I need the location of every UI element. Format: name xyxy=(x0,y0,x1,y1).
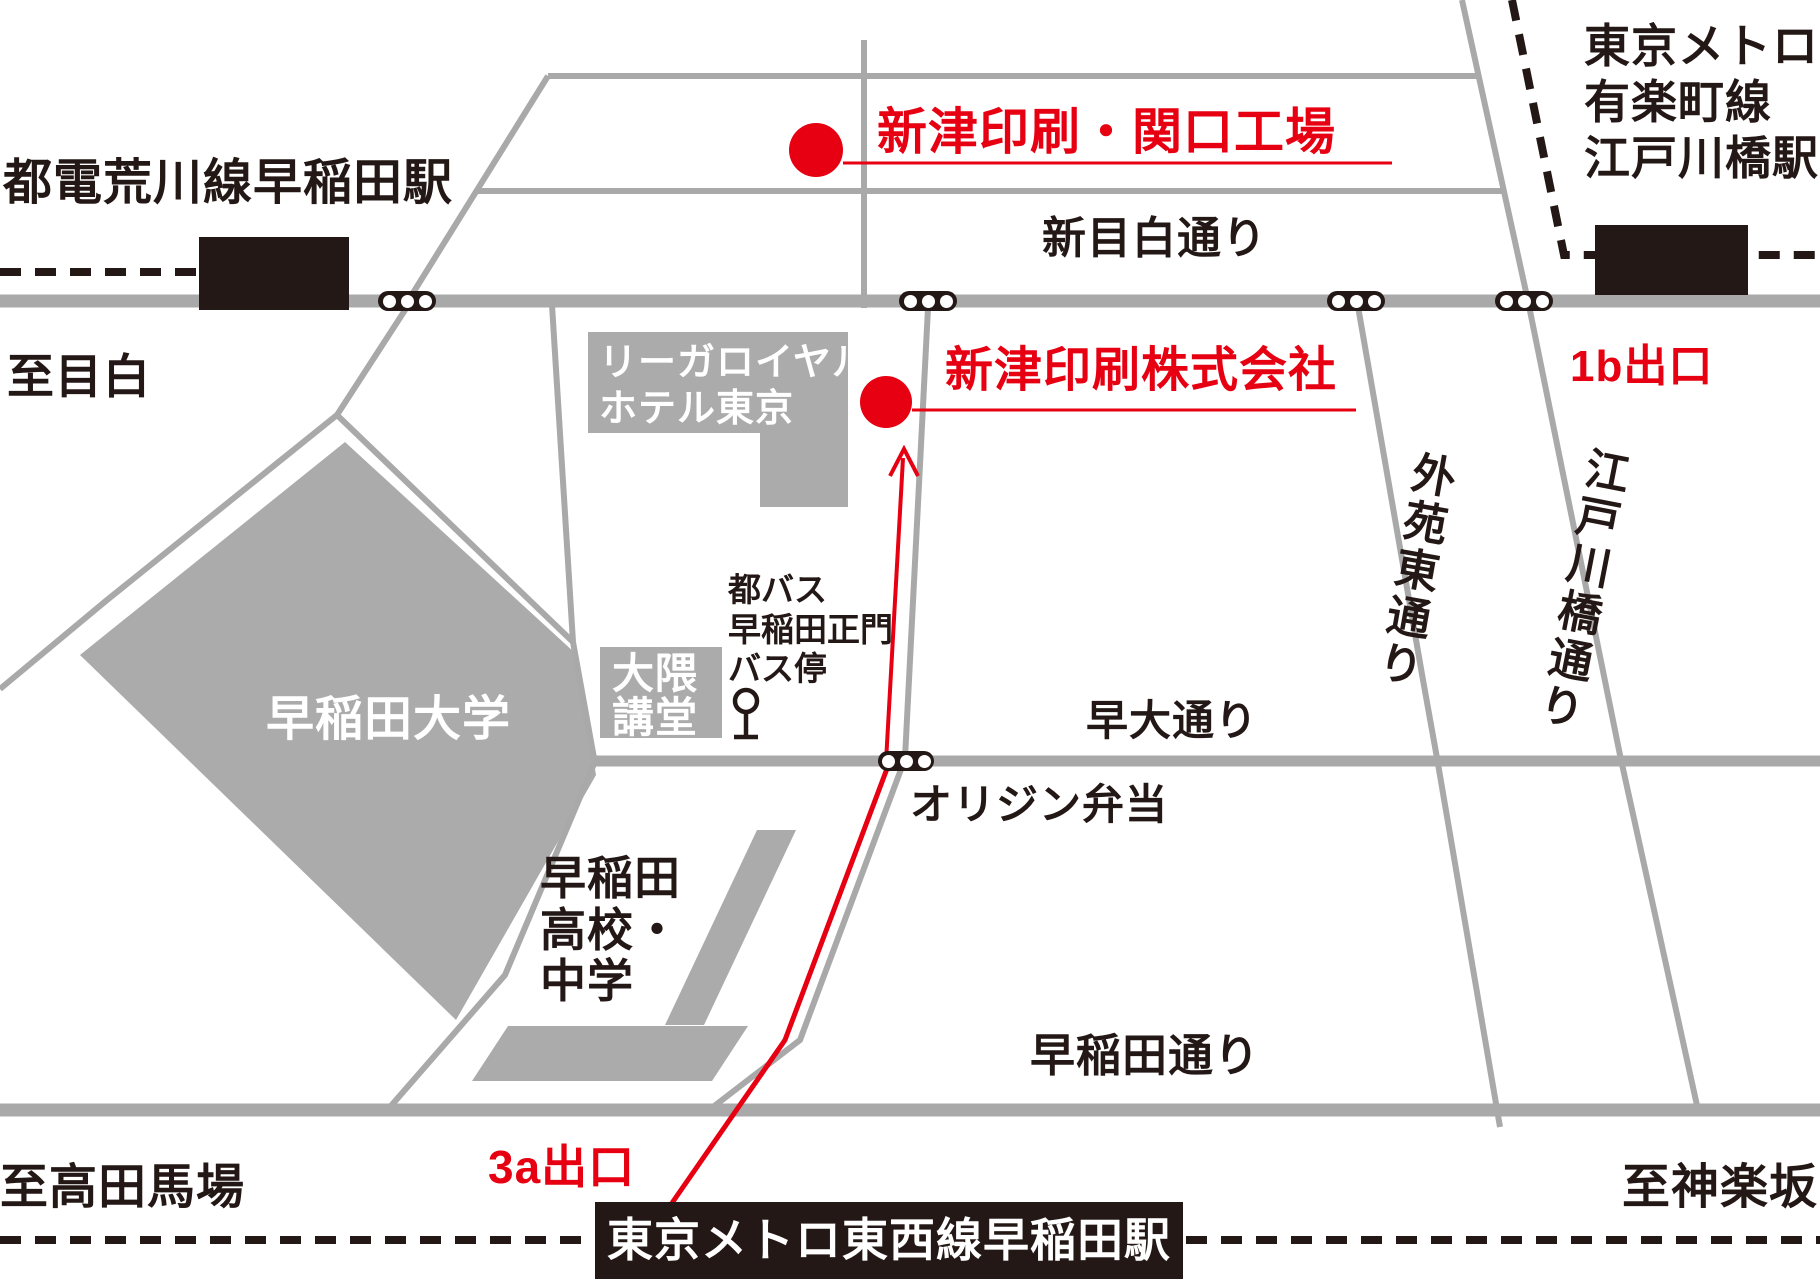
tozai-station-label: 東京メトロ東西線早稲田駅 xyxy=(607,1214,1171,1267)
waseda-dori-label: 早稲田通り xyxy=(1030,1030,1260,1082)
waseda-school-building-b xyxy=(472,1026,748,1081)
origin-bento-label: オリジン弁当 xyxy=(910,781,1168,830)
sekiguchi-plant-label: 新津印刷・関口工場 xyxy=(877,103,1336,161)
toden-station-block-icon xyxy=(199,237,349,310)
bus-stop-label: 都バス 早稲田正門 バス停 xyxy=(728,570,893,689)
to-kagurazaka-label: 至神楽坂 xyxy=(1622,1160,1818,1216)
sekiguchi-plant-dot-icon xyxy=(789,123,843,177)
toden-station-label: 都電荒川線早稲田駅 xyxy=(3,155,453,212)
traffic-light-icon xyxy=(899,291,957,311)
rihga-hotel-label: リーガロイヤル ホテル東京 xyxy=(599,340,871,433)
sodai-dori-label: 早大通り xyxy=(1086,697,1258,746)
to-mejiro-label: 至目白 xyxy=(7,350,151,405)
okuma-auditorium-label: 大隈 講堂 xyxy=(612,652,698,739)
waseda-university-label: 早稲田大学 xyxy=(266,692,511,748)
bus-stop-pole-icon xyxy=(734,690,758,737)
traffic-light-icon xyxy=(1327,291,1385,311)
traffic-light-icon xyxy=(1495,291,1553,311)
traffic-light-icon xyxy=(878,751,934,771)
to-takadanobaba-label: 至高田馬場 xyxy=(0,1160,245,1216)
access-map: 東京メトロ東西線早稲田駅 都電荒川線早稲田駅 東京メトロ 有楽町線 江戸川橋駅 … xyxy=(0,0,1820,1279)
yurakucho-station-block-icon xyxy=(1595,225,1748,295)
exit-3a-label: 3a出口 xyxy=(488,1141,635,1194)
tozai-station-block: 東京メトロ東西線早稲田駅 xyxy=(595,1202,1183,1279)
yurakucho-station-label: 東京メトロ 有楽町線 江戸川橋駅 xyxy=(1584,18,1819,186)
shin-mejiro-dori-label: 新目白通り xyxy=(1042,213,1267,264)
waseda-school-label: 早稲田 高校・ 中学 xyxy=(540,853,681,1008)
exit-1b-label: 1b出口 xyxy=(1570,341,1713,392)
traffic-light-icon xyxy=(378,291,436,311)
head-office-label: 新津印刷株式会社 xyxy=(945,343,1337,399)
waseda-school-building-a xyxy=(665,830,796,1025)
